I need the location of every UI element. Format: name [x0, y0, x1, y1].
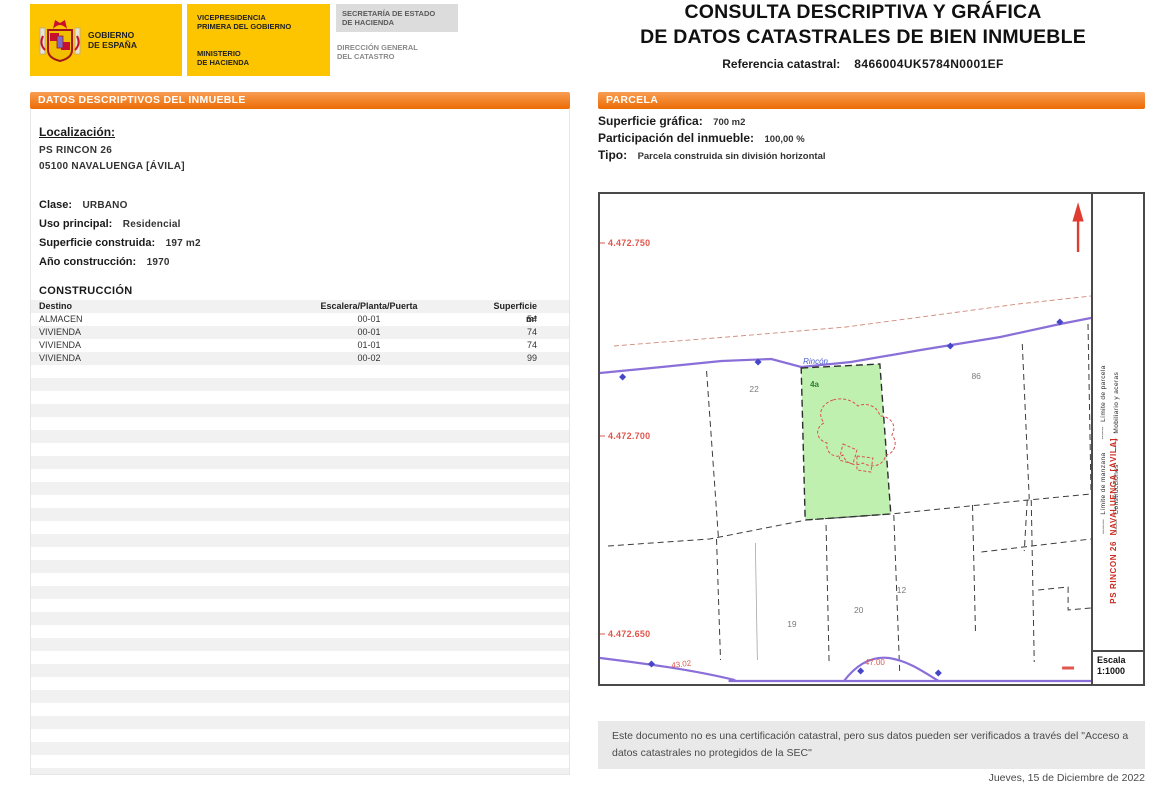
parcel-number: 20	[854, 605, 864, 615]
secretaria-line1: SECRETARÍA DE ESTADO	[342, 9, 452, 18]
cell-destino: ALMACEN	[39, 313, 249, 326]
tipo-label: Tipo:	[598, 148, 627, 162]
cell-superficie: 74	[489, 339, 561, 352]
cadastral-document-page: GOBIERNO DE ESPAÑA VICEPRESIDENCIA PRIME…	[0, 0, 1170, 785]
construccion-table: Destino Escalera/Planta/Puerta Superfici…	[31, 300, 569, 774]
direccion-line1: DIRECCIÓN GENERAL	[337, 43, 458, 52]
table-row: VIVIENDA 00-02 99	[31, 352, 569, 365]
superficie-grafica-row: Superficie gráfica: 700 m2	[598, 113, 1145, 130]
address-line2: 05100 NAVALUENGA [ÁVILA]	[39, 160, 561, 173]
field-clase: Clase: URBANO	[39, 195, 561, 214]
department-block: SECRETARÍA DE ESTADO DE HACIENDA DIRECCI…	[336, 4, 458, 61]
field-superficie-value: 197 m2	[166, 238, 201, 249]
scale-value: 1:1000	[1097, 666, 1139, 677]
cell-escalera: 00-01	[249, 313, 489, 326]
participacion-label: Participación del inmueble:	[598, 131, 754, 145]
field-uso: Uso principal: Residencial	[39, 214, 561, 233]
gobierno-text-line2: DE ESPAÑA	[88, 40, 137, 50]
cell-escalera: 01-01	[249, 339, 489, 352]
road-arc-bottom	[844, 658, 939, 681]
document-title-line1: CONSULTA DESCRIPTIVA Y GRÁFICA	[578, 0, 1148, 25]
utm-coordinate-label: 4.472.750	[608, 238, 651, 248]
referencia-catastral-line: Referencia catastral:8466004UK5784N0001E…	[578, 57, 1148, 71]
construccion-title: CONSTRUCCIÓN	[31, 271, 569, 300]
referencia-value: 8466004UK5784N0001EF	[854, 57, 1003, 71]
table-row: VIVIENDA 00-01 74	[31, 326, 569, 339]
referencia-label: Referencia catastral:	[722, 57, 840, 71]
street-name-label: Rincón	[803, 357, 828, 366]
parcel-number: 19	[787, 619, 797, 629]
direccion-general-text: DIRECCIÓN GENERAL DEL CATASTRO	[336, 43, 458, 61]
map-location-sidetext: PS RINCON 26 NAVALUENGA [ÁVILA]	[1109, 438, 1118, 638]
participacion-value: 100,00 %	[765, 134, 805, 145]
road-elevation-label: 43.02	[671, 659, 692, 670]
participacion-row: Participación del inmueble: 100,00 %	[598, 130, 1145, 147]
disclaimer-text: Este documento no es una certificación c…	[598, 721, 1145, 769]
parcel-sublabel: 4a	[810, 380, 819, 389]
vicepresidencia-line1: VICEPRESIDENCIA	[197, 13, 320, 22]
utm-coordinate-label: 4.472.700	[608, 431, 651, 441]
field-uso-value: Residencial	[123, 219, 181, 230]
secretaria-box: SECRETARÍA DE ESTADO DE HACIENDA	[336, 4, 458, 32]
ministerio-line2: DE HACIENDA	[197, 58, 320, 67]
field-clase-label: Clase:	[39, 199, 72, 211]
superficie-grafica-label: Superficie gráfica:	[598, 114, 703, 128]
ministerio-line1: MINISTERIO	[197, 49, 320, 58]
escudo-espana-icon	[39, 16, 81, 64]
superficie-grafica-value: 700 m2	[713, 117, 745, 128]
scale-box: Escala 1:1000	[1093, 650, 1143, 684]
direccion-line2: DEL CATASTRO	[337, 52, 458, 61]
tipo-value: Parcela construida sin división horizont…	[638, 151, 826, 162]
cadastral-map-frame: 4.472.750 4.472.700 4.472.650	[598, 192, 1145, 686]
field-ano-label: Año construcción:	[39, 256, 136, 268]
north-arrow-icon	[1073, 204, 1083, 252]
gobierno-logo-block: GOBIERNO DE ESPAÑA VICEPRESIDENCIA PRIME…	[30, 4, 330, 76]
table-row: ALMACEN 00-01 54	[31, 313, 569, 326]
cell-superficie: 74	[489, 326, 561, 339]
cell-escalera: 00-02	[249, 352, 489, 365]
address-line1: PS RINCON 26	[39, 144, 561, 157]
parcel-number: 22	[749, 384, 759, 394]
field-ano-value: 1970	[147, 257, 170, 268]
table-header-row: Destino Escalera/Planta/Puerta Superfici…	[31, 300, 569, 313]
field-uso-label: Uso principal:	[39, 218, 112, 230]
ministerio-cell: VICEPRESIDENCIA PRIMERA DEL GOBIERNO MIN…	[187, 4, 330, 76]
gobierno-logo-cell: GOBIERNO DE ESPAÑA	[30, 4, 182, 76]
road-line-top	[600, 318, 1091, 373]
location-sidetext: PS RINCON 26 NAVALUENGA [ÁVILA]	[1109, 438, 1118, 604]
field-ano: Año construcción: 1970	[39, 252, 561, 271]
road-elevation-label: 47.00	[865, 658, 885, 667]
cell-destino: VIVIENDA	[39, 339, 249, 352]
right-section-header: PARCELA	[598, 92, 1145, 109]
tipo-row: Tipo: Parcela construida sin división ho…	[598, 147, 1145, 164]
gobierno-text-line1: GOBIERNO	[88, 30, 137, 40]
parcela-info-block: Superficie gráfica: 700 m2 Participación…	[598, 113, 1145, 164]
cell-superficie: 99	[489, 352, 561, 365]
vicepresidencia-line2: PRIMERA DEL GOBIERNO	[197, 22, 320, 31]
cell-destino: VIVIENDA	[39, 326, 249, 339]
document-title-line2: DE DATOS CATASTRALES DE BIEN INMUEBLE	[578, 25, 1148, 50]
secretaria-line2: DE HACIENDA	[342, 18, 452, 27]
cadastral-map: 4.472.750 4.472.700 4.472.650	[600, 194, 1093, 684]
parcel-number: 12	[897, 585, 907, 595]
cell-superficie: 54	[489, 313, 561, 326]
map-legend-sidebar: ─── Límite de manzana ╌╌╌ Límite de parc…	[1093, 194, 1143, 684]
document-title-block: CONSULTA DESCRIPTIVA Y GRÁFICA DE DATOS …	[578, 0, 1148, 71]
localizacion-block: Localización: PS RINCON 26 05100 NAVALUE…	[31, 109, 569, 173]
left-section-header: DATOS DESCRIPTIVOS DEL INMUEBLE	[30, 92, 570, 109]
utm-coordinate-label: 4.472.650	[608, 629, 651, 639]
red-dashed-boundary	[614, 296, 1091, 346]
cell-escalera: 00-01	[249, 326, 489, 339]
field-superficie-label: Superficie construida:	[39, 237, 155, 249]
scale-label: Escala	[1097, 655, 1139, 666]
table-row: VIVIENDA 01-01 74	[31, 339, 569, 352]
field-clase-value: URBANO	[82, 200, 127, 211]
parcel-number: 86	[971, 371, 981, 381]
cell-destino: VIVIENDA	[39, 352, 249, 365]
cadastral-map-svg: 4.472.750 4.472.700 4.472.650	[600, 194, 1091, 684]
property-fields: Clase: URBANO Uso principal: Residencial…	[31, 173, 569, 271]
legend-column: ─── Límite de manzana ╌╌╌ Límite de parc…	[1100, 204, 1108, 534]
field-superficie: Superficie construida: 197 m2	[39, 233, 561, 252]
road-line-bottom-left	[600, 658, 734, 680]
datos-descriptivos-panel: Localización: PS RINCON 26 05100 NAVALUE…	[30, 109, 570, 775]
localizacion-label: Localización:	[39, 125, 561, 139]
document-date: Jueves, 15 de Diciembre de 2022	[598, 772, 1145, 784]
